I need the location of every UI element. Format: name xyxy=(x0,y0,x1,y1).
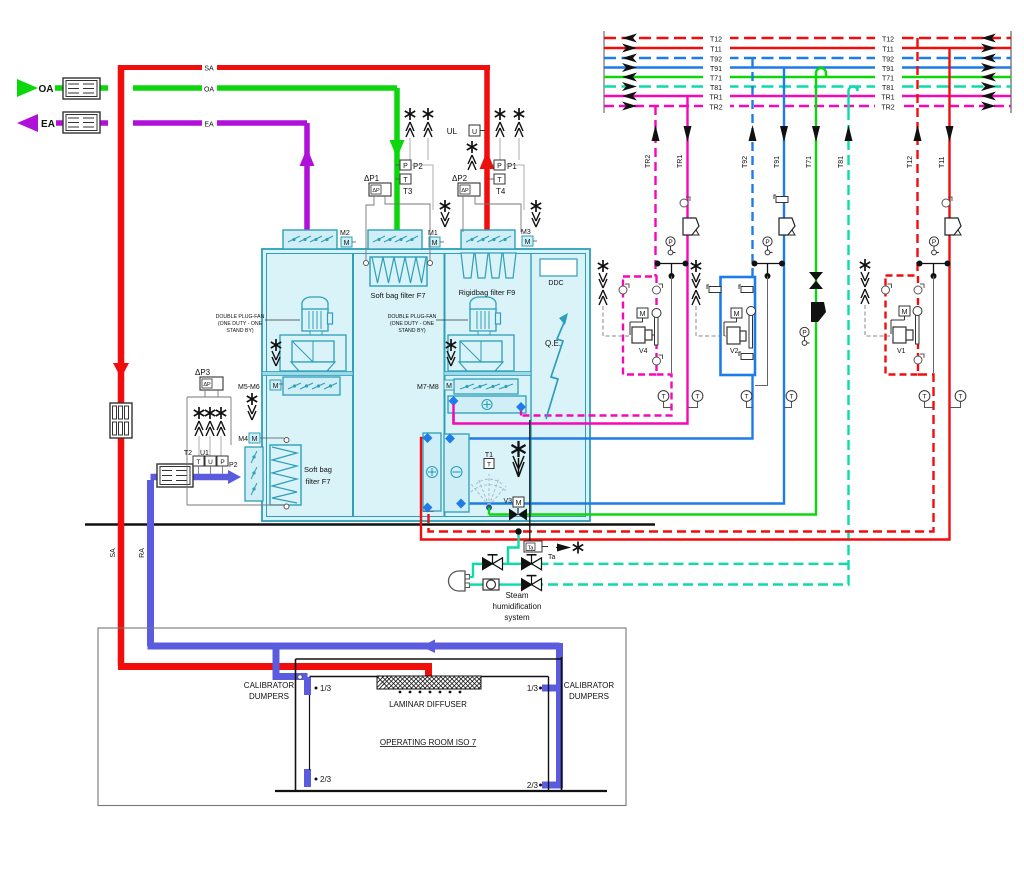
svg-text:OPERATING ROOM ISO 7: OPERATING ROOM ISO 7 xyxy=(380,738,477,747)
svg-text:OA: OA xyxy=(39,84,54,95)
svg-text:TR1: TR1 xyxy=(709,95,722,102)
svg-text:STAND BY): STAND BY) xyxy=(226,328,254,334)
svg-text:T11: T11 xyxy=(882,47,894,54)
svg-text:ΔP: ΔP xyxy=(372,188,380,194)
svg-text:EA: EA xyxy=(41,119,55,130)
svg-text:TR1: TR1 xyxy=(677,155,684,168)
svg-text:DOUBLE PLUG-FAN: DOUBLE PLUG-FAN xyxy=(216,314,265,320)
svg-text:T92: T92 xyxy=(882,57,894,64)
svg-text:TR2: TR2 xyxy=(645,155,652,168)
svg-text:(ONE DUTY - ONE: (ONE DUTY - ONE xyxy=(390,321,435,327)
svg-text:Rigidbag filter F9: Rigidbag filter F9 xyxy=(459,288,516,297)
svg-text:P1: P1 xyxy=(507,162,517,171)
svg-text:ΔP2: ΔP2 xyxy=(452,174,468,183)
svg-text:V1: V1 xyxy=(897,348,906,355)
svg-text:T12: T12 xyxy=(710,37,722,44)
svg-text:DUMPERS: DUMPERS xyxy=(249,692,289,701)
svg-text:TR1: TR1 xyxy=(881,95,894,102)
svg-text:V4: V4 xyxy=(639,348,648,355)
svg-text:T: T xyxy=(487,462,491,469)
svg-text:T: T xyxy=(403,177,408,184)
svg-text:DUMPERS: DUMPERS xyxy=(569,692,609,701)
svg-text:V3: V3 xyxy=(503,498,512,505)
svg-text:M: M xyxy=(273,383,279,390)
svg-text:M: M xyxy=(252,436,258,443)
svg-text:2/3: 2/3 xyxy=(320,775,332,784)
svg-text:ΔP3: ΔP3 xyxy=(195,368,211,377)
svg-text:humidification: humidification xyxy=(493,602,542,611)
svg-text:DOUBLE PLUG-FAN: DOUBLE PLUG-FAN xyxy=(388,314,437,320)
svg-text:T81: T81 xyxy=(882,85,894,92)
svg-text:Soft bag filter F7: Soft bag filter F7 xyxy=(370,291,425,300)
svg-text:V2: V2 xyxy=(730,348,739,355)
svg-text:M2: M2 xyxy=(340,230,350,237)
svg-text:(ONE DUTY - ONE: (ONE DUTY - ONE xyxy=(218,321,263,327)
svg-text:2/3: 2/3 xyxy=(527,781,539,790)
svg-text:M3: M3 xyxy=(521,229,531,236)
svg-text:T: T xyxy=(197,459,201,466)
svg-text:STAND BY): STAND BY) xyxy=(398,328,426,334)
svg-text:UL: UL xyxy=(447,127,458,136)
svg-text:1/3: 1/3 xyxy=(527,684,539,693)
svg-text:M5-M6: M5-M6 xyxy=(238,384,260,391)
svg-text:M: M xyxy=(446,383,452,390)
svg-text:T12: T12 xyxy=(907,156,914,168)
svg-text:M: M xyxy=(525,239,531,246)
svg-text:P: P xyxy=(497,163,502,170)
svg-text:RA: RA xyxy=(139,548,146,558)
svg-text:T: T xyxy=(497,177,502,184)
svg-text:P: P xyxy=(403,163,408,170)
svg-text:U: U xyxy=(208,459,213,466)
svg-text:EA: EA xyxy=(204,122,214,129)
svg-text:ΔP: ΔP xyxy=(203,382,211,388)
svg-text:M7-M8: M7-M8 xyxy=(417,384,439,391)
svg-text:Ta: Ta xyxy=(548,554,556,561)
svg-text:filter F7: filter F7 xyxy=(305,477,330,486)
svg-text:ΔP1: ΔP1 xyxy=(364,174,380,183)
svg-text:T81: T81 xyxy=(838,156,845,168)
svg-text:T92: T92 xyxy=(742,156,749,168)
svg-text:M: M xyxy=(734,311,740,318)
svg-text:P: P xyxy=(220,459,224,466)
svg-text:T92: T92 xyxy=(710,57,722,64)
svg-text:1/3: 1/3 xyxy=(320,684,332,693)
svg-text:T71: T71 xyxy=(806,156,813,168)
svg-text:Ta: Ta xyxy=(528,546,535,552)
svg-text:M1: M1 xyxy=(428,230,438,237)
svg-text:TR2: TR2 xyxy=(881,105,894,112)
svg-text:T71: T71 xyxy=(882,76,894,83)
svg-text:SA: SA xyxy=(110,548,117,558)
svg-text:M4: M4 xyxy=(238,436,248,443)
svg-text:T1: T1 xyxy=(485,452,493,459)
svg-text:T2: T2 xyxy=(184,450,192,457)
svg-text:T91: T91 xyxy=(882,66,894,73)
svg-text:T91: T91 xyxy=(710,66,722,73)
svg-text:Soft bag: Soft bag xyxy=(304,465,332,474)
svg-text:T91: T91 xyxy=(774,156,781,168)
svg-text:U: U xyxy=(472,129,477,136)
svg-text:ΔP: ΔP xyxy=(461,188,469,194)
svg-text:SA: SA xyxy=(204,66,214,73)
svg-text:T81: T81 xyxy=(710,85,722,92)
svg-text:M: M xyxy=(344,240,350,247)
svg-text:M: M xyxy=(516,500,522,507)
svg-text:CALIBRATOR: CALIBRATOR xyxy=(564,681,615,690)
svg-text:T4: T4 xyxy=(496,187,506,196)
svg-text:OA: OA xyxy=(204,87,214,94)
svg-text:T3: T3 xyxy=(403,187,413,196)
svg-text:CALIBRATOR: CALIBRATOR xyxy=(244,681,295,690)
svg-text:M: M xyxy=(432,240,438,247)
svg-text:T12: T12 xyxy=(882,37,894,44)
svg-text:P2: P2 xyxy=(413,162,423,171)
svg-text:T71: T71 xyxy=(710,76,722,83)
svg-text:system: system xyxy=(504,613,530,622)
svg-text:M: M xyxy=(902,309,908,316)
svg-text:DDC: DDC xyxy=(548,280,563,287)
svg-text:T11: T11 xyxy=(710,47,722,54)
svg-text:M: M xyxy=(640,311,646,318)
svg-text:LAMINAR DIFFUSER: LAMINAR DIFFUSER xyxy=(389,700,467,709)
svg-text:TR2: TR2 xyxy=(709,105,722,112)
svg-text:P2: P2 xyxy=(229,462,238,469)
svg-text:Steam: Steam xyxy=(505,591,528,600)
svg-text:T11: T11 xyxy=(939,156,946,168)
